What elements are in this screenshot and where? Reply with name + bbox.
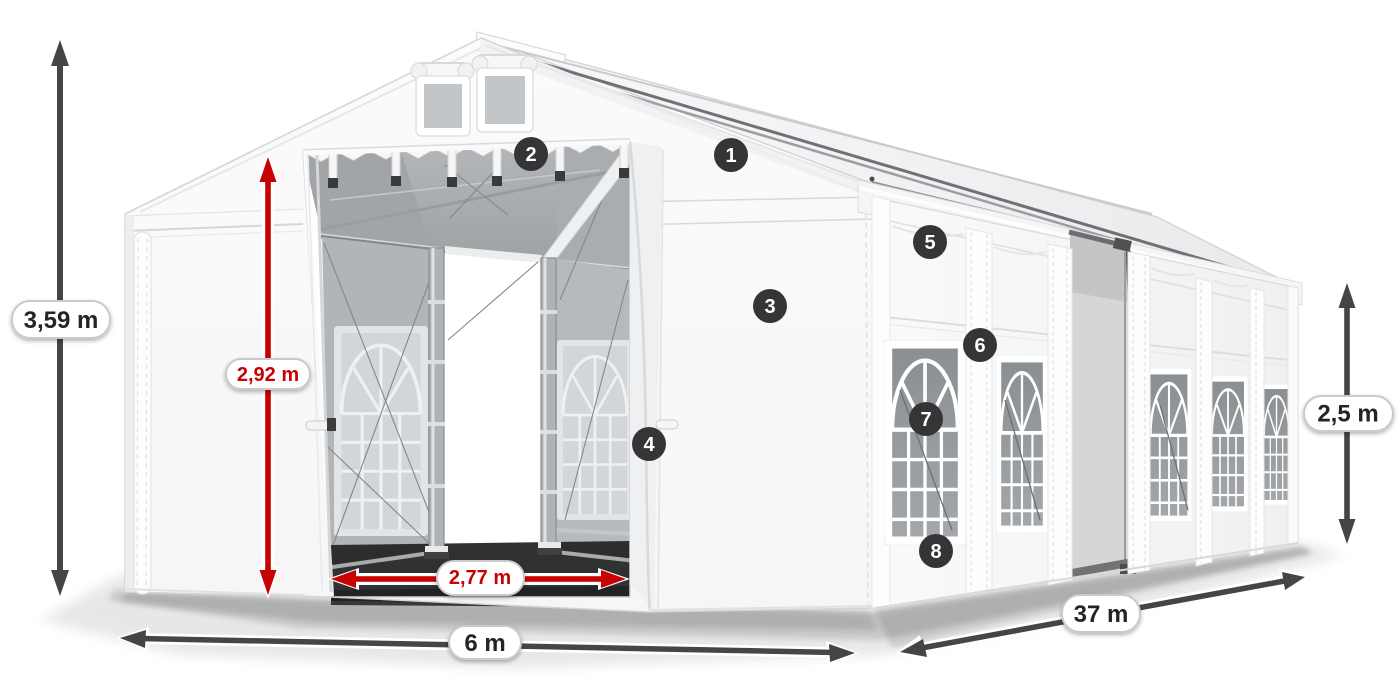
svg-text:3,59 m: 3,59 m	[24, 307, 99, 334]
svg-text:1: 1	[725, 145, 736, 167]
svg-text:2: 2	[525, 144, 536, 166]
svg-text:37 m: 37 m	[1074, 601, 1129, 628]
svg-text:3: 3	[764, 296, 775, 318]
svg-text:8: 8	[930, 541, 941, 563]
svg-text:2,5 m: 2,5 m	[1317, 401, 1378, 428]
svg-text:4: 4	[643, 434, 655, 456]
svg-text:2,92 m: 2,92 m	[237, 364, 299, 386]
svg-text:2,77 m: 2,77 m	[449, 567, 511, 589]
svg-text:7: 7	[920, 409, 931, 431]
svg-text:5: 5	[924, 232, 935, 254]
svg-text:6: 6	[974, 335, 985, 357]
svg-text:6 m: 6 m	[464, 630, 505, 657]
